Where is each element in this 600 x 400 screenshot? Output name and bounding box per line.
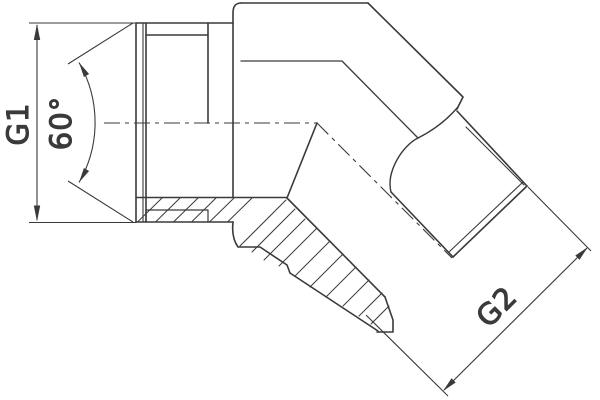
thread-lower-edge xyxy=(290,273,378,331)
hex-flat-edge xyxy=(241,61,418,138)
g2-extension-lower xyxy=(366,315,448,396)
socket-chamfer-lower xyxy=(390,138,418,192)
angle-arrow-top xyxy=(79,63,89,78)
thread-tip xyxy=(377,297,393,332)
g2-label: G2 xyxy=(469,279,523,333)
g2-dimension: G2 xyxy=(366,187,591,396)
socket-end-face-inner xyxy=(449,182,523,252)
thread-hatching xyxy=(138,198,389,324)
angle-ray-top xyxy=(68,23,133,64)
hex-face xyxy=(233,3,241,197)
thread-runout-step xyxy=(233,222,290,273)
g2-dimension-line xyxy=(444,248,587,390)
socket-lower-edge xyxy=(391,192,453,257)
right-port-centerline xyxy=(317,123,452,258)
technical-drawing-page: G1 60° G2 xyxy=(0,0,600,400)
fitting-outline xyxy=(136,3,527,332)
fitting-drawing-canvas: G1 60° G2 xyxy=(0,0,600,400)
socket-upper-edge xyxy=(457,111,527,186)
g1-arrow-top xyxy=(34,24,40,40)
g1-label: G1 xyxy=(1,103,35,146)
angle-ray-bottom xyxy=(68,181,133,222)
thread-upper-edge xyxy=(287,198,385,297)
socket-upper-inner-edge xyxy=(466,127,524,185)
g2-extension-upper xyxy=(528,187,591,251)
socket-end-face xyxy=(453,186,527,257)
angle-arc xyxy=(79,63,95,183)
centerlines xyxy=(104,123,452,258)
elbow-outer-corner xyxy=(368,3,463,109)
left-port-bottom-root xyxy=(146,210,208,222)
socket-chamfer-upper xyxy=(418,107,458,138)
angle-arrow-bottom xyxy=(79,168,89,183)
inner-corner-edge xyxy=(287,123,317,198)
angle-label: 60° xyxy=(44,96,78,150)
g1-arrow-bottom xyxy=(34,206,40,222)
